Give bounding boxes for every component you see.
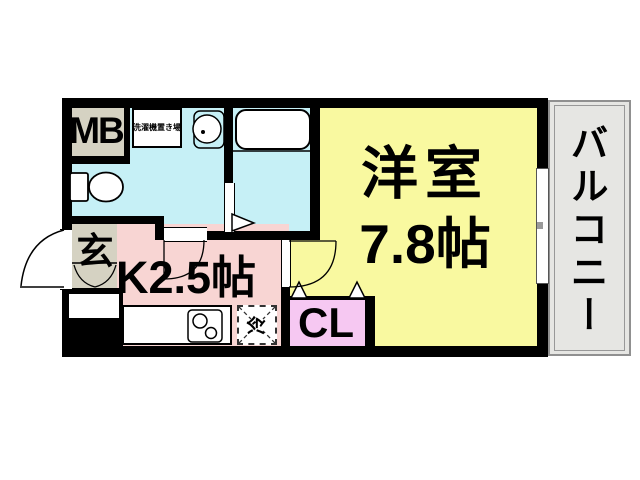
wall-bath-room-divider: [310, 108, 320, 240]
wall-washroom-bath-divider: [224, 108, 233, 183]
room-door-opening: [281, 240, 291, 287]
kitchen-counter: [122, 305, 232, 345]
meter-box-label: MB: [64, 100, 128, 160]
wall-closet-right: [365, 296, 375, 347]
balcony-label: バルコニー: [562, 106, 608, 354]
entrance-door-opening: [60, 229, 72, 290]
bathroom-door-opening: [224, 183, 235, 232]
closet-label: CL: [288, 300, 364, 346]
wall-bath-bottom: [207, 231, 320, 240]
kitchen-label: K2.5帖: [100, 252, 272, 302]
wall-washroom-bottom-left: [62, 216, 164, 224]
wall-bottom: [62, 346, 548, 357]
refrigerator-label: 冷: [237, 305, 277, 345]
western-room-name: 洋室: [335, 143, 515, 205]
laundry-area-label: 洗濯機置き場: [132, 108, 182, 148]
wall-top: [62, 98, 548, 108]
wall-step: [155, 216, 164, 240]
western-room-size: 7.8帖: [335, 214, 515, 274]
washroom-door-opening: [164, 227, 207, 242]
entrance-door-arc: [21, 230, 64, 286]
floorplan: MB 洗濯機置き場 玄 K2.5帖 CL 洋室 7.8帖 バルコニー 冷: [0, 0, 640, 480]
balcony-window-latch: [537, 222, 543, 229]
